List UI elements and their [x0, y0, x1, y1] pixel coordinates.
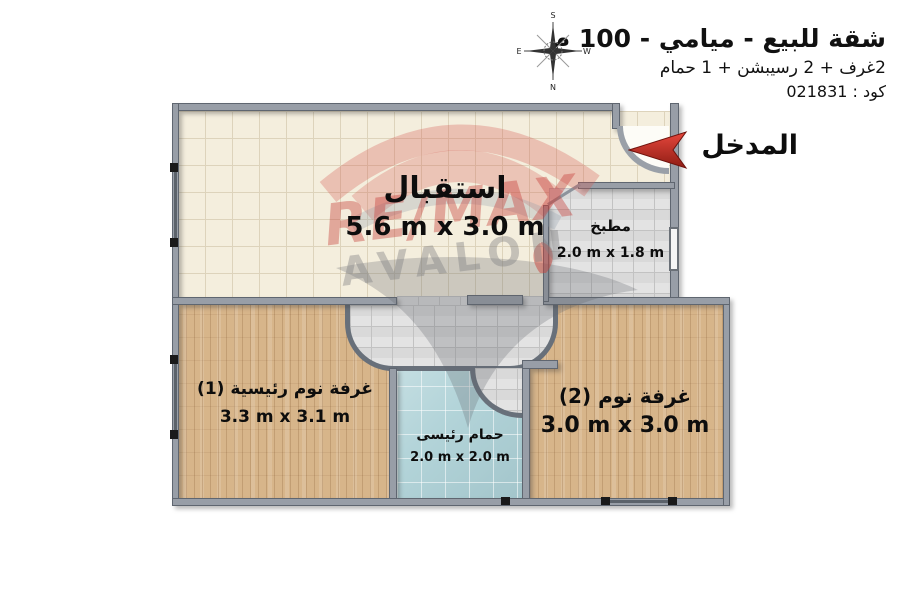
- window-tick: [501, 497, 510, 505]
- reception-dims: 5.6 m x 3.0 m: [330, 213, 560, 242]
- bedroom2-window: [607, 500, 673, 503]
- floor-plan: RE/MAX AVALON استقبال 5.6 m x 3.0 m مطبخ…: [0, 0, 900, 599]
- wall-divider-right: [543, 297, 730, 305]
- wall-top: [172, 103, 614, 111]
- wall-bedroom1-right: [389, 368, 397, 499]
- kitchen-label: مطبخ: [549, 218, 672, 235]
- window-tick: [668, 497, 677, 505]
- bathroom-label: حمام رئيسى: [400, 428, 520, 443]
- window-tick: [601, 497, 610, 505]
- entrance-arrow-icon: [628, 131, 688, 169]
- wall-bedroom2-left: [522, 368, 530, 499]
- window-tick: [170, 238, 178, 247]
- window-tick: [170, 430, 178, 439]
- wall-neck-stub: [467, 295, 523, 305]
- wall-kitchen-top: [578, 182, 675, 189]
- master-bedroom-label: غرفة نوم رئيسية (1): [185, 380, 385, 399]
- wall-bedroom2-stub: [522, 360, 558, 369]
- walls: [0, 0, 900, 599]
- bathroom-dims: 2.0 m x 2.0 m: [400, 451, 520, 465]
- window-tick: [170, 163, 178, 172]
- entrance-label: المدخل: [683, 131, 798, 161]
- bedroom2-label: غرفة نوم (2): [535, 385, 715, 407]
- window-tick: [170, 355, 178, 364]
- kitchen-dims: 2.0 m x 1.8 m: [549, 246, 672, 261]
- wall-right-lower: [723, 297, 730, 506]
- wall-divider-left: [172, 297, 397, 305]
- reception-label: استقبال: [330, 172, 560, 205]
- master-bedroom-dims: 3.3 m x 3.1 m: [185, 408, 385, 427]
- bedroom2-dims: 3.0 m x 3.0 m: [535, 414, 715, 438]
- master-bedroom-window: [174, 362, 177, 434]
- reception-window: [174, 170, 177, 242]
